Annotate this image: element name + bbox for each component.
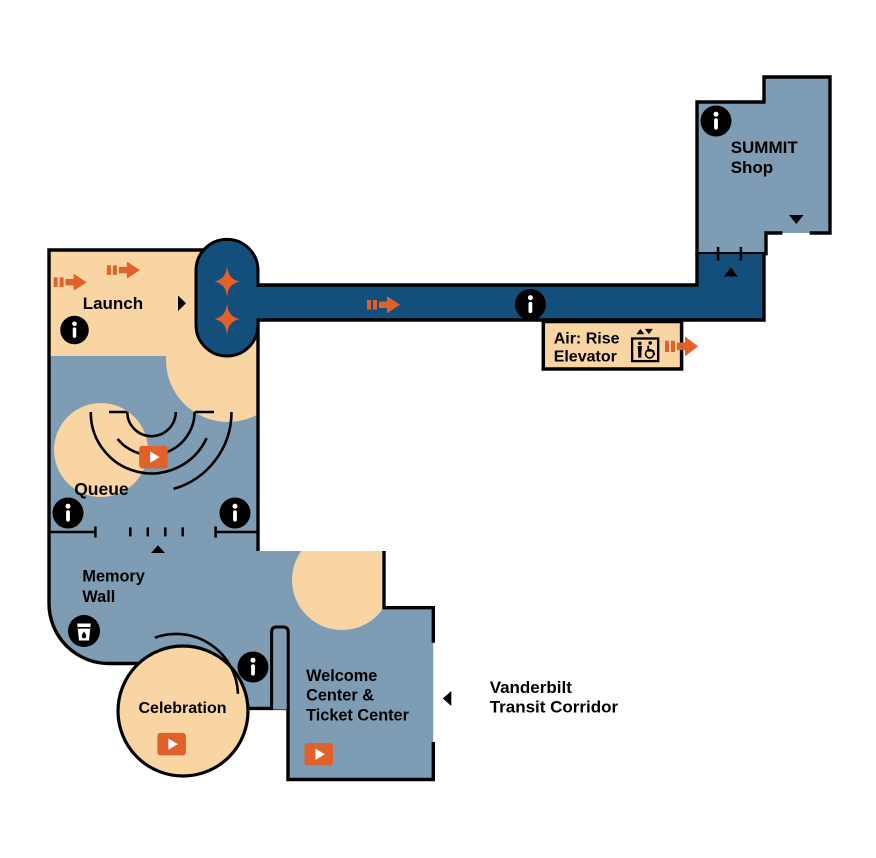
svg-text:Shop: Shop bbox=[731, 158, 774, 177]
svg-text:Celebration: Celebration bbox=[138, 700, 226, 717]
svg-text:Queue: Queue bbox=[74, 479, 129, 499]
svg-text:Welcome: Welcome bbox=[306, 667, 377, 685]
svg-text:Ticket Center: Ticket Center bbox=[306, 706, 410, 724]
svg-text:Launch: Launch bbox=[83, 294, 143, 313]
svg-text:Air: Rise: Air: Rise bbox=[554, 331, 620, 348]
svg-text:Transit Corridor: Transit Corridor bbox=[490, 697, 619, 716]
svg-text:Memory: Memory bbox=[82, 568, 144, 586]
svg-text:Elevator: Elevator bbox=[554, 349, 617, 366]
svg-text:Center &: Center & bbox=[306, 687, 374, 705]
svg-text:Vanderbilt: Vanderbilt bbox=[490, 678, 573, 697]
svg-text:SUMMIT: SUMMIT bbox=[731, 138, 799, 157]
svg-text:Wall: Wall bbox=[82, 588, 115, 606]
